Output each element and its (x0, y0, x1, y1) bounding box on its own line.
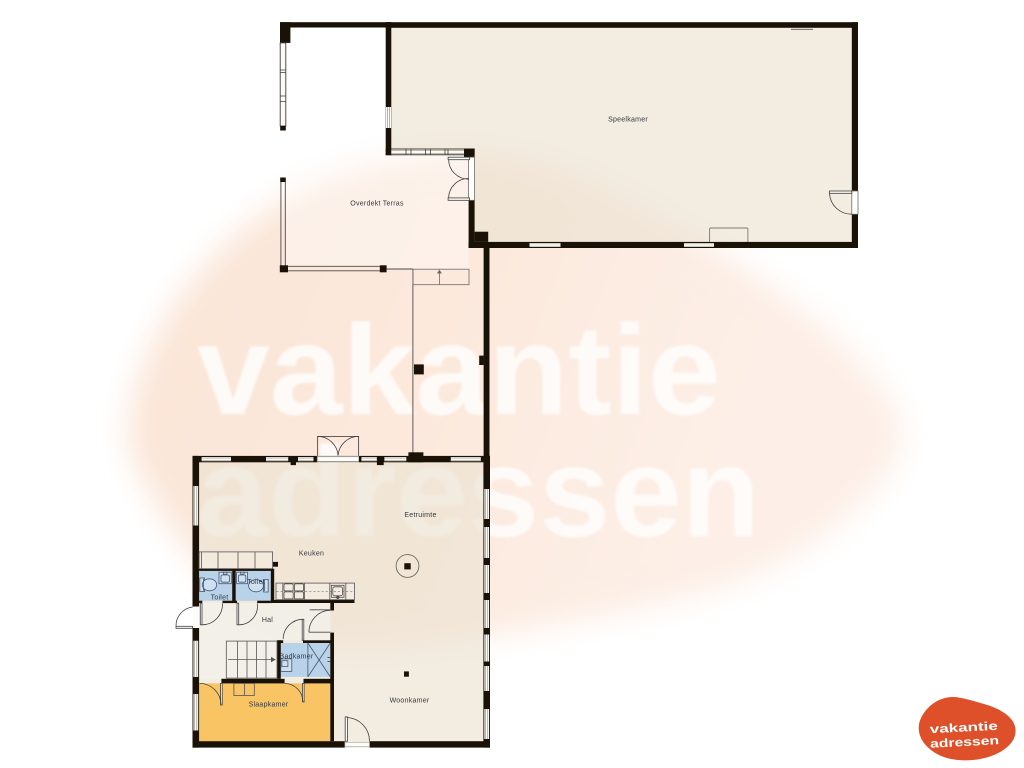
svg-text:Eetruimte: Eetruimte (404, 512, 436, 519)
svg-text:Toilet: Toilet (211, 595, 229, 602)
svg-text:Toilet: Toilet (247, 579, 265, 586)
svg-text:Speelkamer: Speelkamer (608, 117, 648, 124)
svg-text:Slaapkamer: Slaapkamer (249, 702, 289, 709)
svg-text:Woonkamer: Woonkamer (390, 698, 430, 705)
svg-text:Keuken: Keuken (299, 551, 324, 558)
svg-text:Overdekt Terras: Overdekt Terras (350, 201, 404, 208)
svg-text:Hal: Hal (262, 617, 273, 624)
svg-text:Badkamer: Badkamer (280, 654, 314, 661)
